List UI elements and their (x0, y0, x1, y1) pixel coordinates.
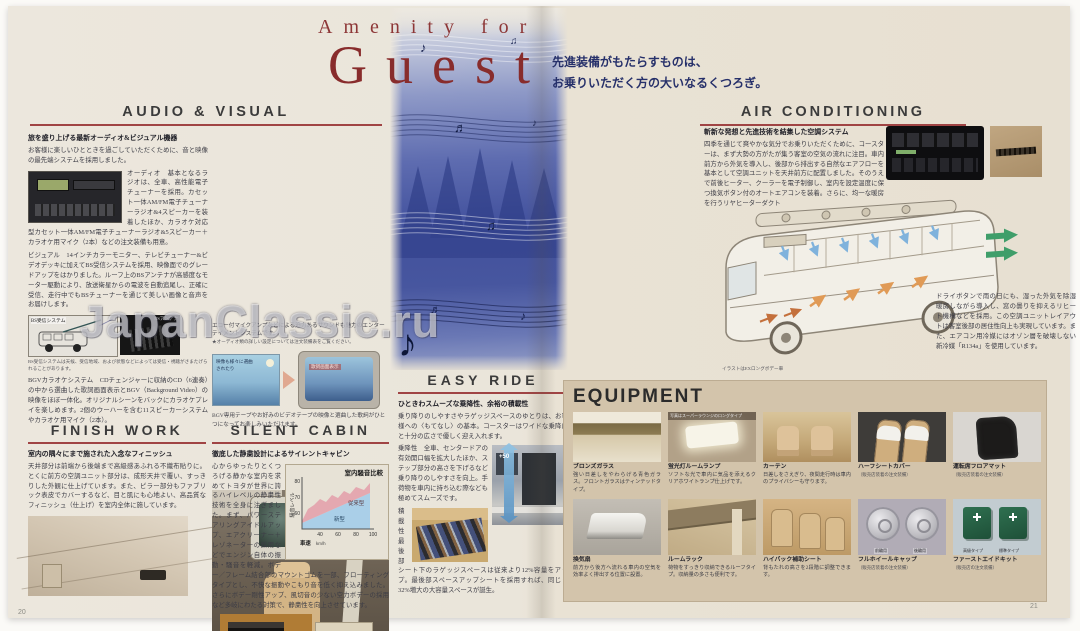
page-number-right: 21 (1030, 603, 1038, 610)
overhead-rack (668, 499, 756, 529)
chart-xunit: km/h (316, 541, 326, 546)
stored-luggage (416, 518, 486, 561)
tagline-line1: 先進装備がもたらすものは、 (552, 52, 767, 73)
half-seat-cover-photo (858, 412, 946, 462)
vent-slot (996, 147, 1036, 157)
standard-kit (999, 507, 1027, 539)
audio-visual-lead: 旅を盛り上げる最新オーディオ&ビジュアル機器 (28, 134, 208, 144)
brochure-scan: ♪♫ ♬♪ ♫♬ ♪ ♪ Amenity for Guest 先進装備がもたらす… (0, 0, 1080, 631)
tagline: 先進装備がもたらすものは、 お乗りいただく方の大いなるくつろぎ。 (552, 52, 767, 94)
front-wheel-cap (866, 507, 900, 541)
floor-mat-photo (953, 412, 1041, 462)
silent-cabin-lead: 徹底した静粛設計によるサイレントキャビン (212, 450, 389, 460)
door-arrow-label: +50 (499, 454, 509, 460)
chart-xlabel: 車速 (300, 539, 311, 547)
room-rack-photo (668, 499, 756, 555)
cassette-slot (73, 180, 115, 190)
item-desc: 背もたれの高さを2段階に調整できます。 (763, 565, 851, 580)
finish-work-heading: FINISH WORK (28, 422, 206, 444)
chart-ylabel: 騒音レベル (289, 492, 296, 517)
item-desc: 荷物をすっきり収納できるルーフタイプ。収納量の多さも便利です。 (668, 565, 756, 580)
book-spine-shadow (526, 6, 556, 618)
ytick-80: 80 (294, 479, 300, 485)
legend-old: 従来型 (348, 499, 365, 507)
item-name: フルホイールキャップ (858, 557, 946, 565)
xtick-60: 60 (335, 532, 341, 538)
equipment-item-wheel-cap: 前輪用 後輪用 フルホイールキャップ （販売店装着の注文装備） (858, 499, 946, 580)
bus-illustration-caption: イラストはEXロングボデー車 (722, 366, 783, 372)
silent-cabin-heading: SILENT CABIN (212, 422, 389, 444)
item-name: ファーストエイドキット (953, 557, 1041, 565)
finish-work-lead: 室内の隅々にまで施された入念なフィニッシュ (28, 450, 206, 460)
title-guest: Guest (328, 38, 549, 92)
equipment-item-half-seat-cover: ハーフシートカバー （販売店装着の注文装備） (858, 412, 946, 494)
bgv-card-text: 映像も様々に選曲されたり (216, 359, 256, 373)
equipment-item-floor-mat: 運転席フロアマット （販売店装着の注文装備） (953, 412, 1041, 494)
av-equipment-rack (228, 622, 284, 631)
curtain-photo (763, 412, 851, 462)
item-note: （販売店装着の注文装備） (953, 472, 1041, 478)
equipment-item-first-aid-kit: 高級タイプ 標準タイプ ファーストエイドキット （販売店の注文装備） (953, 499, 1041, 580)
wheel-cap-photo: 前輪用 後輪用 (858, 499, 946, 555)
audio-visual-column: 旅を盛り上げる最新オーディオ&ビジュアル機器 お客様に楽しいひとときを過ごしてい… (28, 128, 208, 426)
silent-cabin-body-wrap: 室内騒音比較 80 70 60 40 60 80 100 騒音レベル 車速 km… (212, 462, 389, 611)
air-conditioning-lead: 斬新な発想と先進技術を結集した空調システム (704, 128, 884, 138)
audio-visual-heading: AUDIO & VISUAL (30, 104, 382, 126)
seat-left (874, 419, 902, 462)
chart-title: 室内騒音比較 (345, 468, 384, 477)
first-aid-kit-photo: 高級タイプ 標準タイプ (953, 499, 1041, 555)
wheel-cap-label-front: 前輪用 (874, 548, 888, 554)
bronze-glass-photo (573, 412, 661, 462)
pillar (732, 509, 742, 555)
seat-right (902, 419, 930, 462)
page-number-left: 20 (18, 609, 26, 616)
xtick-40: 40 (317, 532, 323, 538)
rear-vent-photo (990, 126, 1042, 177)
radio-buttons (35, 204, 115, 216)
item-note: （販売店の注文装備） (953, 565, 1041, 571)
luggage-space-photo (412, 508, 488, 562)
wheel-cap-label-rear: 後輪用 (913, 548, 927, 554)
panel-display (896, 150, 916, 154)
bgv-diagram-row: 映像も様々に選曲されたり 歌詞画面表示 (212, 351, 389, 409)
silent-cabin-section: SILENT CABIN 徹底した静粛設計によるサイレントキャビン 室内騒音比較… (212, 422, 389, 610)
floor-mat (976, 416, 1019, 461)
xtick-80: 80 (353, 532, 359, 538)
radio-display (37, 179, 69, 191)
equipment-item-room-rack: ルームラック 荷物をすっきり収納できるルーフタイプ。収納量の多さも便利です。 (668, 499, 756, 580)
item-desc: 日差しをさえぎり、夜間走行時は車内のプライバシーも守ります。 (763, 472, 851, 487)
xtick-100: 100 (369, 532, 378, 538)
kit-label-deluxe: 高級タイプ (963, 548, 983, 554)
equipment-grid: ブロンズガラス 強い日差しをやわらげる青色ガラス。フロントガラスはティンテッドタ… (573, 412, 1047, 580)
equipment-panel: EQUIPMENT ブロンズガラス 強い日差しをやわらげる青色ガラス。フロントガ… (563, 380, 1047, 602)
finish-work-body: 天井部分は前端から後端まで高級感あふれる不織布貼りに。とくに前方の空調ユニット部… (28, 462, 206, 512)
audio-visual-intro: お客様に楽しいひとときを過ごしていただくために、音と映像の最先端システムを採用し… (28, 146, 208, 166)
radio-tuner-photo (28, 171, 122, 223)
item-name: ルームラック (668, 557, 756, 565)
noise-comparison-chart: 室内騒音比較 80 70 60 40 60 80 100 騒音レベル 車速 km… (285, 464, 389, 560)
item-name: カーテン (763, 464, 851, 472)
air-conditioning-body2: ドライボタンで雨の日にも、湿った外気を除湿暖房しながら導入し、窓の曇りを抑えるリ… (936, 292, 1076, 352)
bs-note: BS受信システムは天候、受信地域、および状態などによっては受信・視聴がさまたげら… (28, 359, 208, 372)
equipment-item-highback-seat: ハイバック補助シート 背もたれの高さを2段階に調整できます。 (763, 499, 851, 580)
legend-new: 新型 (334, 515, 345, 523)
bgv-screen-text: 歌詞画面表示 (309, 364, 341, 370)
bgv-source-card: 映像も様々に選曲されたり (212, 354, 280, 406)
equipment-item-room-lamp: 写真はスーパーラウンジのロングタイプ 蛍光灯ルームランプ ソフトな光で車内に気品… (668, 412, 756, 494)
item-name: 換気扇 (573, 557, 661, 565)
air-conditioning-heading: AIR CONDITIONING (700, 104, 966, 126)
item-note: （販売店装着の注文装備） (858, 472, 946, 478)
rear-wheel-cap (905, 507, 939, 541)
ceiling-vent (42, 564, 62, 588)
item-desc: 前方から後方へ流れる車内の空気を効率よく排出する位置に設置。 (573, 565, 661, 580)
sun-icon (266, 359, 274, 367)
highback-seat-photo (763, 499, 851, 555)
kit-label-standard: 標準タイプ (999, 548, 1019, 554)
deluxe-kit (963, 507, 991, 539)
autoaircon-control-panel-photo (886, 126, 984, 180)
panel-button-row2 (892, 158, 978, 172)
interior-mirror (140, 570, 166, 580)
item-name: 運転席フロアマット (953, 464, 1041, 472)
equipment-item-ventilation-fan: 換気扇 前方から後方へ流れる車内の空気を効率よく排出する位置に設置。 (573, 499, 661, 580)
audio-paragraph-wrap: オーディオ 基本となるラジオは、全車、高性能電子チューナーを採用。カセット一体A… (28, 169, 208, 248)
item-desc: ソフトな光で車内に気品を添えるクリアホワイトランプ仕上げです。 (668, 472, 756, 487)
equipment-heading: EQUIPMENT (573, 386, 1047, 408)
fluorescent-lamp (685, 421, 739, 448)
item-desc: 強い日差しをやわらげる青色ガラス。フロントガラスはティンテッドタイプ。 (573, 472, 661, 495)
equipment-item-curtain: カーテン 日差しをさえぎり、夜間走行時は車内のプライバシーも守ります。 (763, 412, 851, 494)
room-lamp-photo: 写真はスーパーラウンジのロングタイプ (668, 412, 756, 462)
windshield (728, 262, 756, 300)
finish-work-section: FINISH WORK 室内の隅々にまで施された入念なフィニッシュ 天井部分は前… (28, 422, 206, 596)
merge-arrow-icon (283, 371, 295, 389)
item-name: 蛍光灯ルームランプ (668, 464, 756, 472)
photo-overlay-caption: 写真はスーパーラウンジのロングタイプ (668, 412, 756, 420)
bgv-tv-screen: 歌詞画面表示 (298, 351, 380, 409)
watermark: JapanClassic.ru (0, 296, 520, 348)
panel-button-row1 (892, 133, 978, 147)
equipment-item-bronze-glass: ブロンズガラス 強い日差しをやわらげる青色ガラス。フロントガラスはティンテッドタ… (573, 412, 661, 494)
item-name: ブロンズガラス (573, 464, 661, 472)
ventilation-fan-photo (573, 499, 661, 555)
ceiling-finish-photo (28, 516, 188, 596)
item-name: ハイバック補助シート (763, 557, 851, 565)
bgv-paragraph: BGVカラオケシステム CDチェンジャーに収納のCD（6連奏）の中から選曲した歌… (28, 376, 208, 426)
side-console (315, 622, 373, 631)
item-note: （販売店装着の注文装備） (858, 565, 946, 571)
tagline-line2: お乗りいただく方の大いなるくつろぎ。 (552, 73, 767, 94)
fan-unit (586, 513, 648, 539)
item-name: ハーフシートカバー (858, 464, 946, 472)
